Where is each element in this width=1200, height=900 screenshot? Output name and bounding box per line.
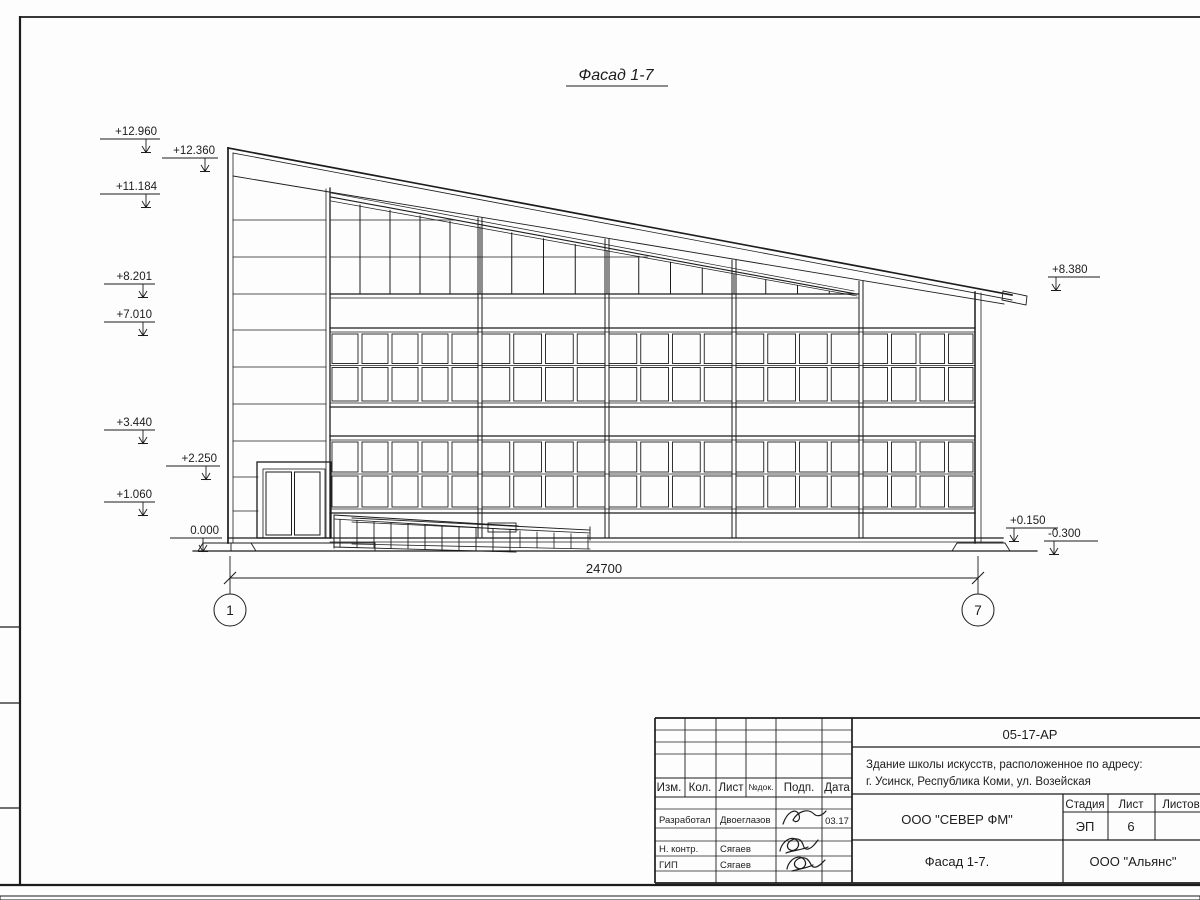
elevation-mark: +12.360 [162,145,218,172]
sheet-number: 6 [1127,819,1134,834]
plinth-and-ground [193,538,1037,551]
col-podp: Подп. [784,782,815,794]
elevation-mark-text: +12.360 [173,145,215,157]
date-developed: 03.17 [825,816,849,827]
clerestory-rail [330,193,858,298]
elevation-mark-text: +11.184 [116,181,158,193]
elevation-mark: +1.060 [104,489,155,516]
facade-drawing [193,148,1037,552]
elevation-mark: +11.184 [100,181,160,208]
right-wall [975,292,981,543]
elevation-mark-text: 0.000 [190,525,219,537]
elevation-mark-text: +12.960 [115,126,157,138]
elevation-mark-text: +1.060 [117,489,153,501]
elevation-mark: -0.300 [1044,528,1098,555]
sheet-title: Фасад 1-7. [925,854,989,869]
axis-bubble-7: 7 [962,594,994,626]
elevation-mark-text: +8.380 [1052,264,1088,276]
elevation-mark: +2.250 [166,453,220,480]
elevation-mark: +8.201 [104,271,155,298]
col-ndok: №док. [749,782,774,792]
role-gip: ГИП [659,860,678,871]
title-block: 05-17-АР Здание школы искусств, располож… [655,718,1200,883]
elevation-mark: +12.960 [100,126,160,153]
col-izm: Изм. [657,782,682,794]
elevation-mark-text: +8.201 [117,271,153,283]
doc-number: 05-17-АР [1003,727,1058,742]
axis-bubble-1: 1 [214,594,246,626]
view-title-text: Фасад 1-7 [579,67,655,84]
axis-1-label: 1 [226,603,234,618]
elevation-mark: 0.000 [170,525,222,552]
first-floor-windows [332,442,973,507]
axis-7-label: 7 [974,603,982,618]
elevation-mark: +7.010 [104,309,155,336]
name-ncontrol: Сягаев [720,844,751,855]
col-data: Дата [824,782,850,794]
role-developed: Разработал [659,815,711,826]
role-ncontrol: Н. контр. [659,844,698,855]
elevation-marks: +12.960+12.360+11.184+8.201+7.010+3.440+… [100,126,1100,555]
signature-developed [783,811,826,824]
window-band-rails [330,328,975,513]
col-list: Лист [719,782,745,794]
elevation-mark-text: +0.150 [1010,515,1046,527]
signature-ncontrol [780,838,818,853]
elevation-mark-text: +7.010 [117,309,153,321]
signature-gip [787,857,825,871]
elevation-mark: +8.380 [1048,264,1100,291]
name-developed: Двоеглазов [720,815,771,826]
dimension-line: 24700 [224,556,984,594]
right-footing [952,543,1010,551]
organization: ООО "СЕВЕР ФМ" [901,812,1013,827]
sheet-header: Лист [1119,799,1145,811]
project-name-line2: г. Усинск, Республика Коми, ул. Возейска… [866,776,1091,788]
sheets-header: Листов [1162,799,1199,811]
project-name-line1: Здание школы искусств, расположенное по … [866,759,1143,771]
elevation-mark: +3.440 [104,417,155,444]
left-wall-strip [228,148,330,543]
view-title: Фасад 1-7 [566,67,668,86]
elevation-mark-text: +2.250 [182,453,218,465]
second-floor-windows [332,334,973,401]
stage-header: Стадия [1065,799,1104,811]
dimension-text: 24700 [586,561,622,576]
name-gip: Сягаев [720,860,751,871]
elevation-mark-text: +3.440 [117,417,153,429]
stage-value: ЭП [1076,819,1095,834]
left-footing [198,543,256,551]
drawing-sheet: Фасад 1-7 [0,0,1200,900]
elevation-mark-text: -0.300 [1048,528,1081,540]
col-kol: Кол. [689,782,712,794]
access-ramp [334,515,590,552]
roof [228,148,1027,305]
company: ООО "Альянс" [1090,854,1177,869]
